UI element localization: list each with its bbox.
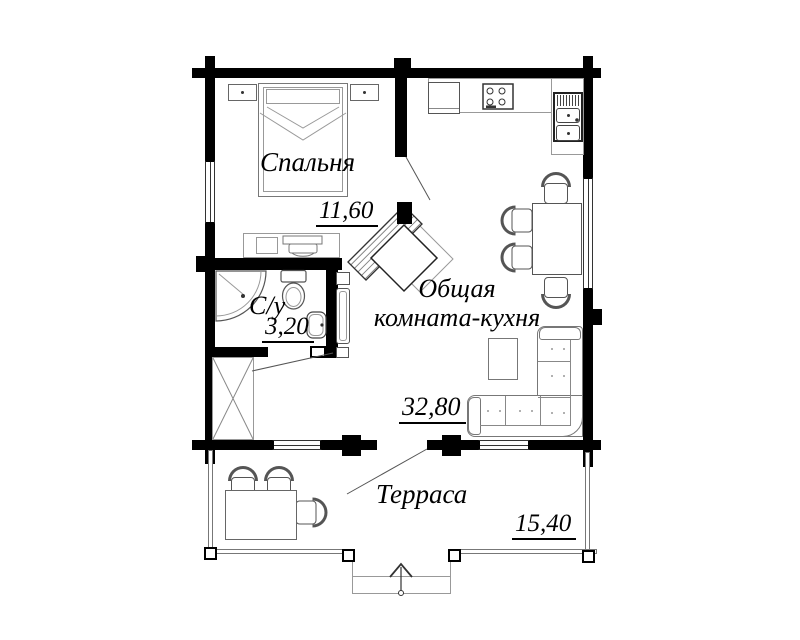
wardrobe — [212, 357, 254, 440]
room-label-living-kitchen: Общая комната-кухня — [372, 274, 542, 332]
dresser-box — [256, 237, 278, 254]
sofa-seam-3 — [505, 396, 506, 425]
railing-bottom-right — [458, 549, 597, 554]
cross-post-left — [196, 256, 205, 272]
cross-post-right — [593, 309, 602, 325]
sofa-seam-1 — [538, 361, 570, 362]
kitchen-cabinet — [428, 82, 460, 114]
bed-pillow — [266, 89, 340, 104]
room-label-living-line1: Общая — [372, 274, 542, 303]
sink-basin-2 — [556, 125, 580, 141]
cross-post-bottom-2 — [442, 435, 461, 456]
chair-seat — [296, 501, 317, 525]
dining-chair-left-1 — [501, 204, 534, 238]
wall-bottom-segment-1 — [192, 440, 272, 450]
dining-chair-bottom — [539, 276, 573, 309]
partition-bedroom-living — [395, 78, 407, 157]
cross-post-top — [394, 58, 411, 78]
window-living-right — [583, 177, 593, 290]
chair-seat — [544, 183, 568, 204]
chair-seat — [544, 277, 568, 298]
boiler-shelf-bottom — [336, 347, 349, 358]
floor-plan: Спальня 11,60 С/у 3,20 Общая комната-кух… — [0, 0, 800, 640]
coffee-table — [488, 338, 518, 380]
sofa-seam-4 — [540, 396, 541, 425]
cabinet-line — [429, 108, 459, 109]
wall-bottom-segment-4 — [530, 440, 601, 450]
partition-bedroom-bathroom — [205, 258, 342, 270]
step-edge-1 — [352, 576, 451, 577]
fireplace-chimney — [397, 202, 412, 224]
room-area-bedroom: 11,60 — [316, 197, 378, 227]
bedroom-door-line — [406, 157, 430, 200]
partition-bathroom-bottom — [205, 347, 268, 357]
window-hall-bottom — [272, 440, 322, 450]
terrace-chair-3 — [295, 496, 328, 530]
railing-left — [208, 450, 213, 554]
room-label-bedroom: Спальня — [260, 147, 355, 178]
sofa-buttons — [487, 410, 489, 412]
boiler-shelf-top — [336, 272, 350, 285]
sofa-seam-2 — [538, 397, 570, 398]
room-area-terrace: 15,40 — [512, 510, 576, 540]
nightstand-left — [228, 84, 257, 101]
terrace-table — [225, 490, 297, 540]
boiler-inner — [339, 291, 347, 341]
sofa-backrest-line-v — [570, 340, 571, 425]
room-area-bathroom: 3,20 — [262, 313, 314, 343]
railing-post-1 — [204, 547, 217, 560]
door-frame-post — [310, 346, 326, 358]
chair-seat — [512, 209, 533, 233]
steps-up-arrow — [390, 564, 412, 596]
corner-sofa-horizontal — [467, 395, 583, 437]
nightstand-right — [350, 84, 379, 101]
cross-post-bottom-1 — [342, 435, 361, 456]
railing-bottom-left — [206, 549, 352, 554]
chair-seat — [512, 246, 533, 270]
dining-chair-left-2 — [501, 241, 534, 275]
sofa-armrest-left — [468, 397, 481, 435]
railing-post-3 — [448, 549, 461, 562]
window-living-bottom — [478, 440, 530, 450]
room-area-living-kitchen: 32,80 — [399, 392, 466, 424]
sofa-backrest-line-h — [480, 425, 571, 426]
dining-chair-top — [539, 172, 573, 205]
dining-table — [532, 203, 582, 275]
room-label-terrace: Терраса — [376, 479, 467, 510]
room-label-living-line2: комната-кухня — [372, 303, 542, 332]
railing-post-4 — [582, 550, 595, 563]
window-bedroom-left — [205, 160, 215, 224]
sofa-armrest-top — [539, 327, 581, 340]
sink-drainboard — [557, 95, 579, 106]
sink-basin-1 — [556, 108, 580, 123]
railing-right — [585, 452, 590, 552]
railing-post-2 — [342, 549, 355, 562]
step-edge-2 — [352, 593, 451, 594]
